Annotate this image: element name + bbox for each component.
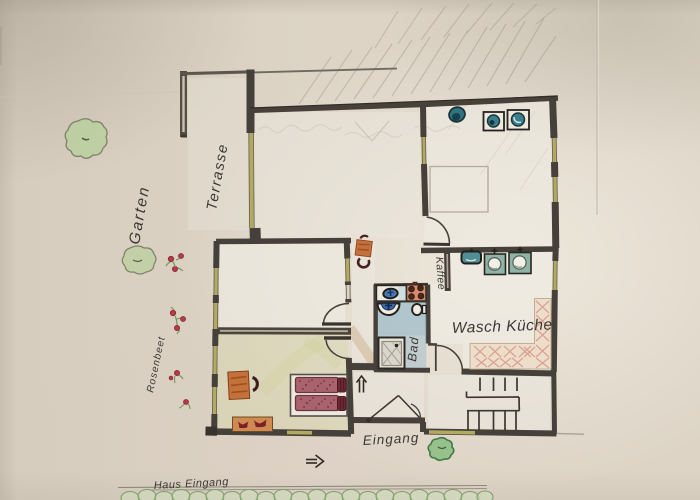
- svg-text:Wasch Küche: Wasch Küche: [452, 316, 553, 337]
- svg-text:Garten: Garten: [126, 184, 153, 245]
- svg-text:Kaffee: Kaffee: [433, 256, 447, 290]
- svg-text:Eingang: Eingang: [362, 430, 419, 448]
- svg-text:Rosenbeet: Rosenbeet: [145, 335, 168, 394]
- svg-text:Bad: Bad: [405, 336, 422, 363]
